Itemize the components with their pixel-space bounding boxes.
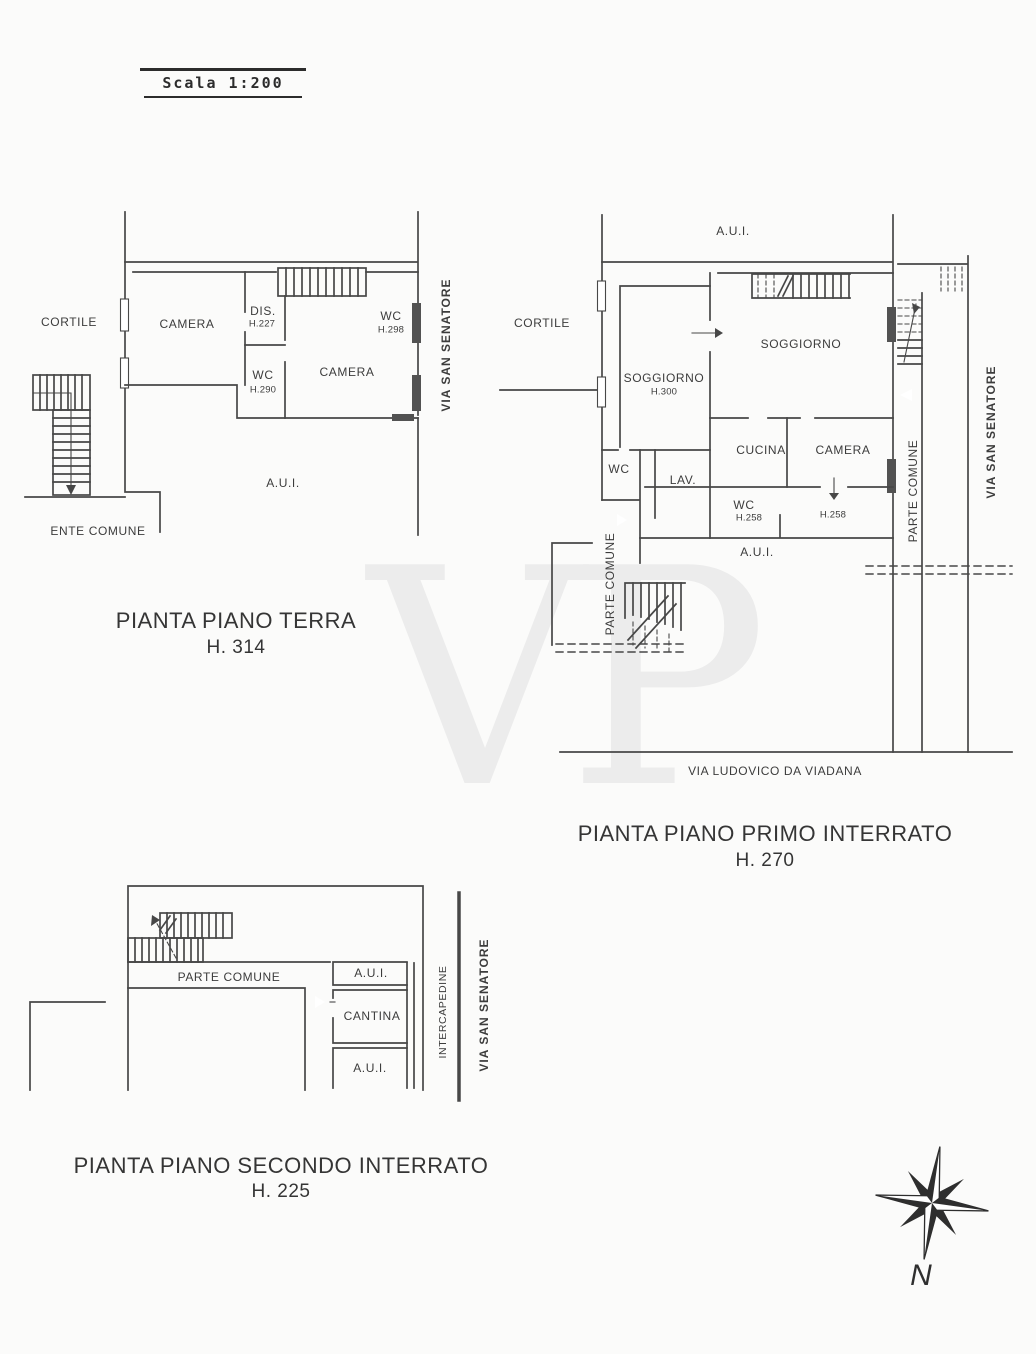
room-height-dis: H.227 bbox=[249, 319, 275, 330]
label-parte-comune-3: PARTE COMUNE bbox=[178, 970, 281, 984]
street-label-via-san-senatore-primo: VIA SAN SENATORE bbox=[984, 365, 998, 498]
street-label-via-san-senatore-terra: VIA SAN SENATORE bbox=[439, 278, 453, 411]
room-label-cortile-2: CORTILE bbox=[514, 316, 570, 330]
room-label-aui: A.U.I. bbox=[266, 476, 300, 490]
label-parte-comune-left: PARTE COMUNE bbox=[603, 533, 617, 636]
room-label-camera-left: CAMERA bbox=[160, 317, 215, 331]
room-label-soggiorno-left: SOGGIORNO bbox=[624, 371, 705, 385]
floorplan-linework bbox=[0, 0, 1036, 1354]
plan-height-secondo: H. 225 bbox=[252, 1181, 311, 1203]
plan-primo-interrato-walls bbox=[500, 215, 1012, 752]
scale-label: Scala 1:200 bbox=[144, 71, 302, 98]
room-label-cortile: CORTILE bbox=[41, 315, 97, 329]
plan-title-secondo: PIANTA PIANO SECONDO INTERRATO bbox=[74, 1153, 489, 1179]
plan-height-primo: H. 270 bbox=[736, 850, 795, 872]
street-label-via-ludovico: VIA LUDOVICO DA VIADANA bbox=[688, 764, 862, 778]
room-height-soggiorno: H.300 bbox=[651, 387, 677, 398]
room-label-wc-left-2: WC bbox=[608, 462, 629, 476]
room-label-aui-top-3: A.U.I. bbox=[354, 966, 388, 980]
plan-height-terra: H. 314 bbox=[207, 637, 266, 659]
plan-title-primo: PIANTA PIANO PRIMO INTERRATO bbox=[578, 821, 953, 847]
cadastral-floorplan-sheet: Scala 1:200 VP bbox=[0, 0, 1036, 1354]
room-label-wc-top: WC bbox=[380, 309, 401, 323]
plan-title-terra: PIANTA PIANO TERRA bbox=[116, 608, 356, 634]
room-label-dis: DIS. bbox=[250, 304, 276, 318]
room-label-camera-2: CAMERA bbox=[816, 443, 871, 457]
compass-north-label: N bbox=[910, 1259, 932, 1293]
room-label-aui-top: A.U.I. bbox=[716, 224, 750, 238]
label-intercapedine: INTERCAPEDINE bbox=[437, 966, 449, 1059]
room-label-ente-comune: ENTE COMUNE bbox=[50, 524, 145, 538]
room-height-wc-top: H.298 bbox=[378, 325, 404, 336]
street-label-via-san-senatore-secondo: VIA SAN SENATORE bbox=[477, 938, 491, 1071]
room-label-soggiorno-right: SOGGIORNO bbox=[761, 337, 842, 351]
room-height-camera-2: H.258 bbox=[820, 510, 846, 521]
scale-bar: Scala 1:200 bbox=[140, 68, 306, 98]
compass-rose-icon bbox=[868, 1139, 997, 1268]
room-label-aui-bottom: A.U.I. bbox=[740, 545, 774, 559]
room-height-wc-mid: H.290 bbox=[250, 385, 276, 396]
room-label-cantina: CANTINA bbox=[344, 1009, 401, 1023]
room-label-cucina: CUCINA bbox=[736, 443, 786, 457]
room-label-aui-bottom-3: A.U.I. bbox=[353, 1061, 387, 1075]
room-height-wc-mid-2: H.258 bbox=[736, 513, 762, 524]
label-parte-comune-right: PARTE COMUNE bbox=[906, 440, 920, 543]
room-label-camera-right: CAMERA bbox=[320, 365, 375, 379]
plan-secondo-interrato-walls bbox=[30, 886, 459, 1100]
room-label-wc-mid: WC bbox=[252, 368, 273, 382]
room-label-lav: LAV. bbox=[670, 473, 696, 487]
room-label-wc-mid-2: WC bbox=[733, 498, 754, 512]
